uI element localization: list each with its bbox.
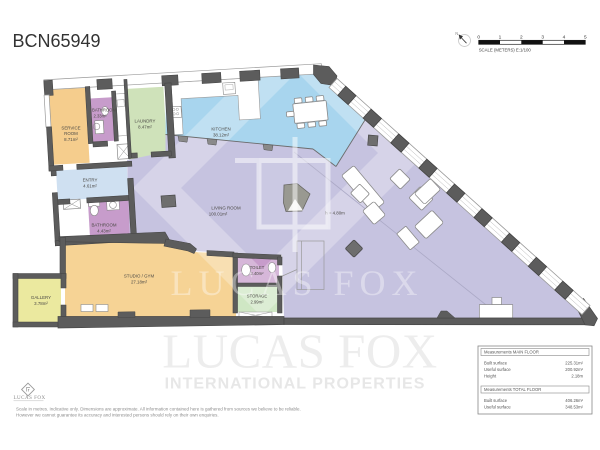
svg-text:N: N xyxy=(455,31,458,36)
svg-text:4.61m²: 4.61m² xyxy=(83,183,97,188)
svg-text:BATHROOM: BATHROOM xyxy=(92,108,116,113)
svg-text:3.78m²: 3.78m² xyxy=(34,301,48,306)
svg-text:Height: Height xyxy=(484,373,497,378)
svg-text:3: 3 xyxy=(541,34,544,40)
svg-text:LAUNDRY: LAUNDRY xyxy=(135,119,156,124)
svg-text:100.01m²: 100.01m² xyxy=(209,211,228,216)
svg-text:200.92m²: 200.92m² xyxy=(565,367,583,372)
svg-text:LUCAS FOX: LUCAS FOX xyxy=(162,324,437,379)
svg-text:SCALE (METERS) E:1/100: SCALE (METERS) E:1/100 xyxy=(479,47,532,52)
svg-text:Measurements MAIN FLOOR: Measurements MAIN FLOOR xyxy=(484,350,539,355)
svg-text:8.71m²: 8.71m² xyxy=(64,137,78,142)
svg-text:Useful surface: Useful surface xyxy=(484,367,511,372)
svg-text:BCN65949: BCN65949 xyxy=(13,31,101,51)
svg-text:Scale in metres. Indicative on: Scale in metres. Indicative only. Dimens… xyxy=(16,407,301,412)
svg-text:1: 1 xyxy=(499,34,502,40)
svg-text:225.31m²: 225.31m² xyxy=(565,360,583,365)
svg-text:ROOM: ROOM xyxy=(64,131,78,136)
svg-text:INTERNATIONAL PROPERTIES: INTERNATIONAL PROPERTIES xyxy=(165,376,426,393)
svg-text:However we cannot guarantee it: However we cannot guarantee its accuracy… xyxy=(16,413,219,418)
svg-text:LUCAS FOX: LUCAS FOX xyxy=(14,396,46,401)
svg-text:Useful surface: Useful surface xyxy=(484,404,511,409)
svg-text:BATHROOM: BATHROOM xyxy=(91,223,116,228)
svg-text:0: 0 xyxy=(477,34,480,40)
svg-text:KITCHEN: KITCHEN xyxy=(211,127,230,132)
svg-text:STUDIO / GYM: STUDIO / GYM xyxy=(124,274,155,279)
svg-text:4: 4 xyxy=(563,34,566,40)
svg-text:8.47m²: 8.47m² xyxy=(138,124,152,129)
svg-text:2.18m: 2.18m xyxy=(571,373,583,378)
svg-text:4.43m²: 4.43m² xyxy=(97,228,111,233)
svg-text:5: 5 xyxy=(584,34,587,40)
svg-text:406.26m²: 406.26m² xyxy=(565,398,583,403)
svg-text:Built surface: Built surface xyxy=(484,360,508,365)
svg-text:Built surface: Built surface xyxy=(484,398,508,403)
svg-text:27.18m²: 27.18m² xyxy=(131,279,148,284)
svg-text:2.33m²: 2.33m² xyxy=(93,114,107,119)
svg-text:LUCAS FOX: LUCAS FOX xyxy=(170,263,423,303)
svg-text:LIVING ROOM: LIVING ROOM xyxy=(211,206,241,211)
svg-text:GALLERY: GALLERY xyxy=(31,295,51,300)
svg-text:2: 2 xyxy=(520,34,523,40)
svg-text:ENTRY: ENTRY xyxy=(83,178,98,183)
svg-text:SERVICE: SERVICE xyxy=(61,126,80,131)
svg-text:Measurements TOTAL FLOOR: Measurements TOTAL FLOOR xyxy=(484,387,541,392)
svg-text:38.12m²: 38.12m² xyxy=(213,132,230,137)
svg-text:348.53m²: 348.53m² xyxy=(565,404,583,409)
